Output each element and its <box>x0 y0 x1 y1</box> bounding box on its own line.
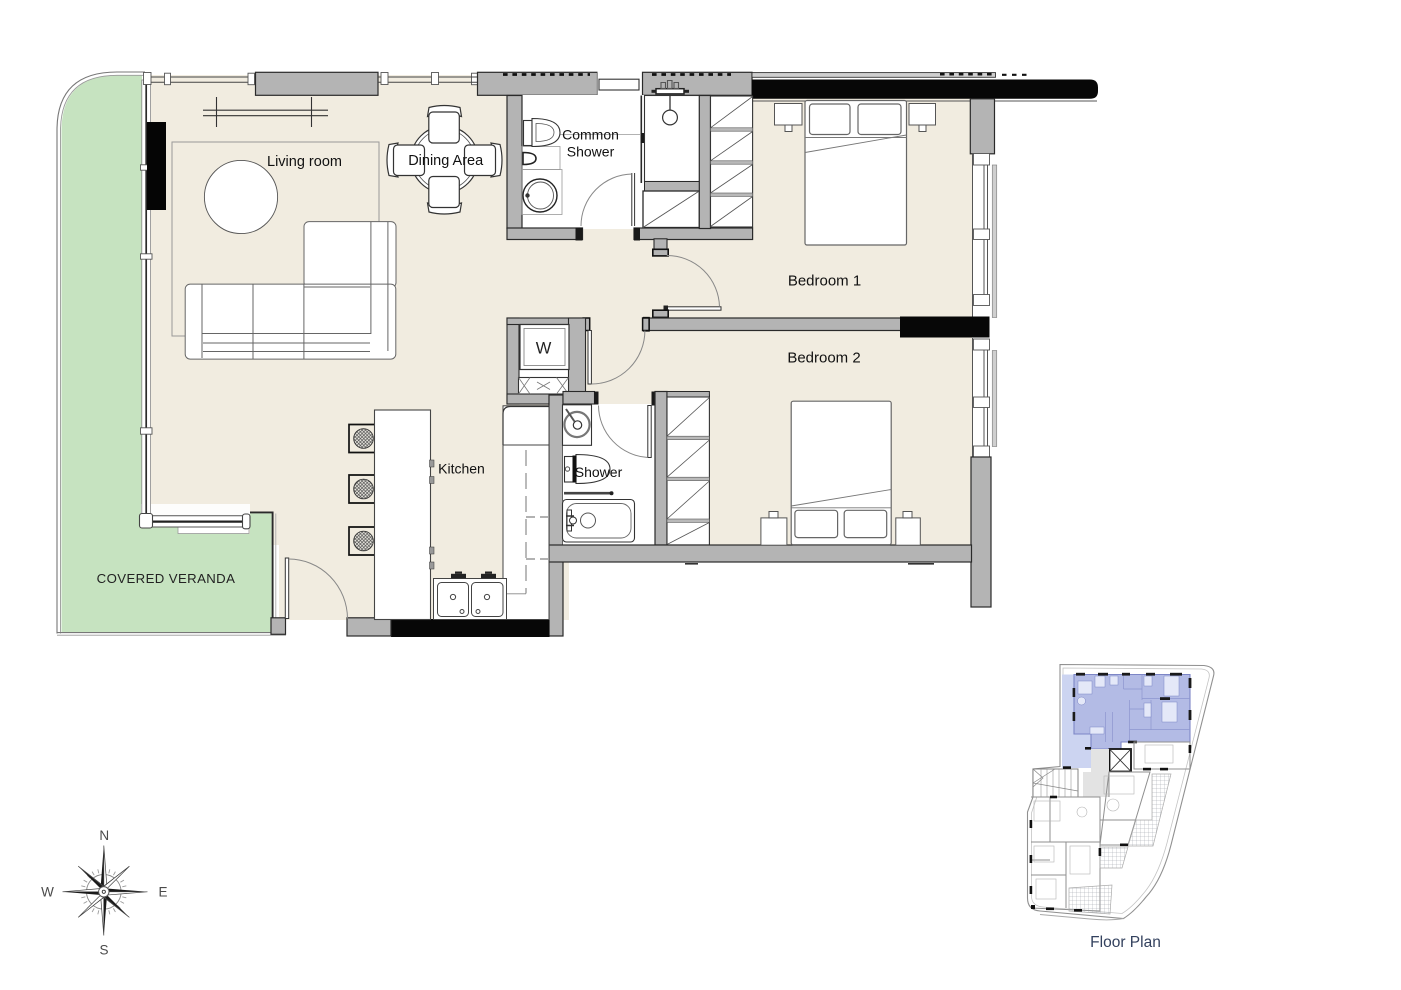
svg-text:W: W <box>536 340 552 358</box>
svg-text:Kitchen: Kitchen <box>438 461 485 477</box>
svg-text:Bedroom 2: Bedroom 2 <box>787 350 860 367</box>
svg-text:E: E <box>158 884 167 899</box>
svg-text:COVERED VERANDA: COVERED VERANDA <box>97 571 236 586</box>
svg-text:Shower: Shower <box>575 464 623 480</box>
svg-text:W: W <box>41 884 54 899</box>
svg-text:Living room: Living room <box>267 154 342 170</box>
svg-text:S: S <box>99 943 108 958</box>
svg-text:Floor Plan: Floor Plan <box>1090 934 1161 951</box>
svg-text:Shower: Shower <box>567 144 615 160</box>
svg-text:N: N <box>99 828 109 843</box>
svg-text:Common: Common <box>562 127 619 143</box>
svg-text:Dining Area: Dining Area <box>408 153 484 169</box>
svg-text:Bedroom 1: Bedroom 1 <box>788 273 861 290</box>
